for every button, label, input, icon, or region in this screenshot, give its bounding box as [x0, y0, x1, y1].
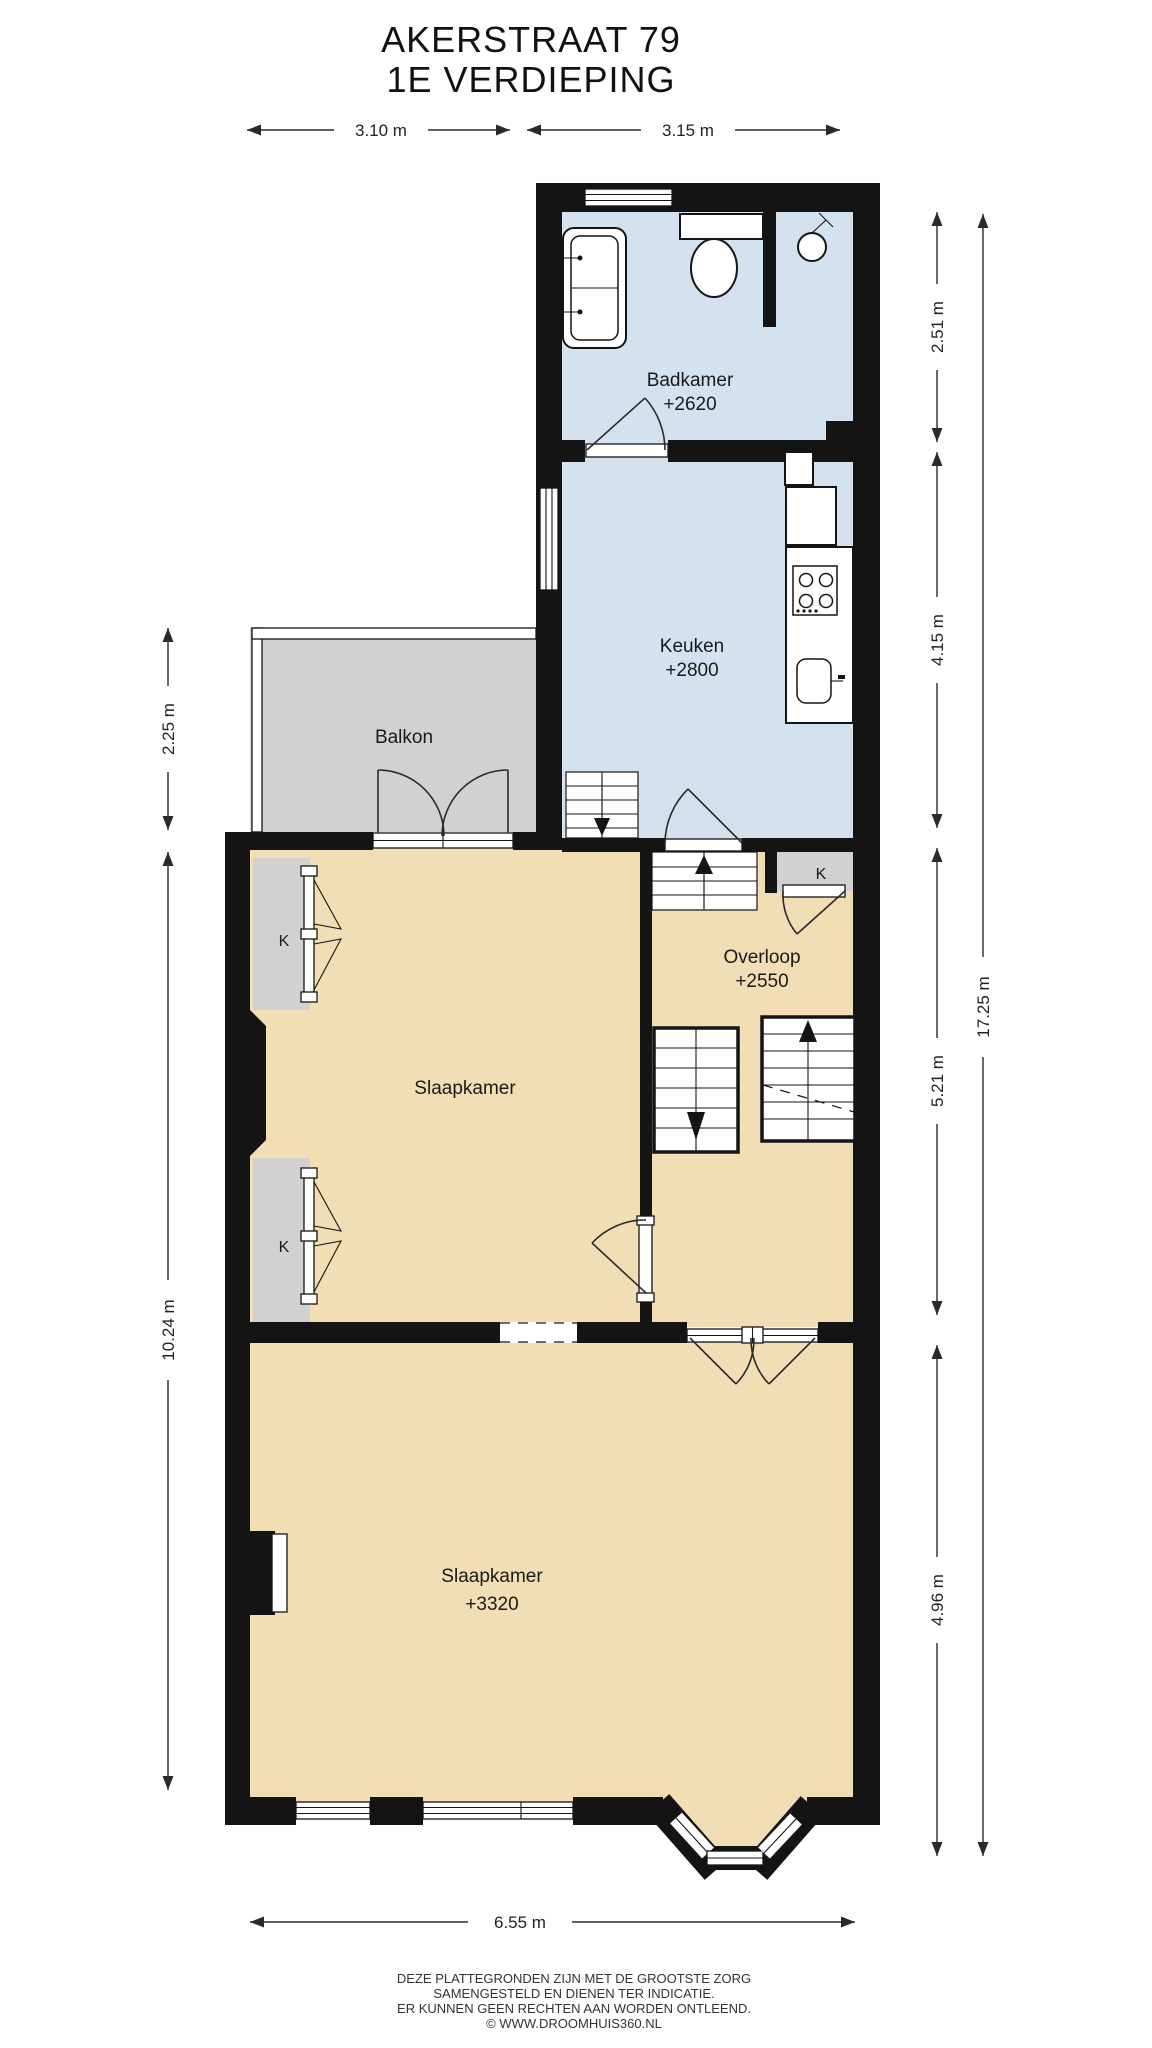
keuken-label: Keuken: [660, 636, 724, 657]
badkamer-door-sill: [586, 444, 668, 457]
stairs-overloop-up-top: [652, 852, 757, 910]
overloop-label: Overloop: [723, 947, 800, 968]
fireplace-fixture: [245, 1531, 287, 1615]
dim-bottom: 6.55 m: [250, 1907, 855, 1937]
overloop-level: +2550: [735, 971, 788, 992]
badkamer-level: +2620: [663, 394, 716, 415]
dim-right-slaapkamer: 4.96 m: [924, 1345, 950, 1856]
dim-right-badkamer: 2.51 m: [924, 212, 950, 442]
chimney-breast: [225, 1010, 266, 1156]
closet-top-left-label: K: [279, 933, 290, 950]
badkamer-label: Badkamer: [647, 370, 734, 391]
footer-line4: © WWW.DROOMHUIS360.NL: [486, 2016, 662, 2031]
slaapkamer-front-floor: [238, 1335, 870, 1805]
floorplan-page: 3.10 m 3.15 m 2.51 m 4.15 m: [0, 0, 1152, 2048]
footer-line2: SAMENGESTELD EN DIENEN TER INDICATIE.: [433, 1986, 714, 2001]
dashed-opening: [500, 1322, 577, 1343]
dim-right-total: 17.25 m: [970, 214, 996, 1856]
balkon-label: Balkon: [375, 727, 433, 748]
slaapkamer-front-window-right: [423, 1802, 573, 1819]
stove-fixture: [793, 566, 837, 615]
dim-right-overloop-label: 5.21 m: [928, 1055, 947, 1107]
slaapkamer-front-window-left: [296, 1802, 370, 1819]
balkon-door-sill: [373, 833, 513, 848]
slaapkamer-mid-door-sill: [637, 1216, 654, 1302]
dim-right-badkamer-label: 2.51 m: [928, 301, 947, 353]
keuken-window: [540, 488, 558, 590]
dim-top-left: 3.10 m: [247, 115, 510, 145]
slaapkamer-front-label: Slaapkamer: [441, 1566, 543, 1587]
dim-top-right: 3.15 m: [527, 115, 840, 145]
stairs-overloop-down: [654, 1028, 738, 1152]
closet-bottom-left-label: K: [279, 1239, 290, 1256]
bay-window-center: [707, 1851, 763, 1865]
footer-line1: DEZE PLATTEGRONDEN ZIJN MET DE GROOTSTE …: [397, 1971, 751, 1986]
dim-right-total-label: 17.25 m: [974, 976, 993, 1037]
keuken-level: +2800: [665, 660, 718, 681]
dim-left-slaapkamers: 10.24 m: [155, 852, 181, 1790]
dim-right-slaapkamer-label: 4.96 m: [928, 1574, 947, 1626]
dim-left-balkon: 2.25 m: [155, 628, 181, 830]
footer-line3: ER KUNNEN GEEN RECHTEN AAN WORDEN ONTLEE…: [397, 2001, 751, 2016]
footer: DEZE PLATTEGRONDEN ZIJN MET DE GROOTSTE …: [397, 1971, 751, 2031]
double-sink-fixture: [552, 228, 626, 348]
closet-overloop-label: K: [816, 866, 827, 883]
dim-left-balkon-label: 2.25 m: [159, 703, 178, 755]
closet-overloop-door-sill: [783, 885, 845, 897]
badkamer-window: [585, 189, 672, 206]
dim-left-slaapkamers-label: 10.24 m: [159, 1299, 178, 1360]
stairs-overloop-up: [762, 1017, 855, 1141]
slaapkamer-front-level: +3320: [465, 1594, 518, 1615]
stairs-keuken-down: [566, 772, 638, 838]
dim-right-keuken: 4.15 m: [924, 452, 950, 828]
page-title-line2: 1E VERDIEPING: [386, 59, 675, 100]
page-title-line1: AKERSTRAAT 79: [381, 19, 681, 60]
dim-bottom-label: 6.55 m: [494, 1913, 546, 1932]
dim-right-keuken-label: 4.15 m: [928, 614, 947, 666]
dim-top-right-label: 3.15 m: [662, 121, 714, 140]
slaapkamer-mid-label: Slaapkamer: [414, 1078, 516, 1099]
keuken-door-sill: [665, 839, 742, 851]
double-door-sill: [687, 1327, 818, 1343]
floorplan-drawing: 3.10 m 3.15 m 2.51 m 4.15 m: [0, 0, 1152, 2048]
dim-top-left-label: 3.10 m: [355, 121, 407, 140]
dim-right-overloop: 5.21 m: [924, 848, 950, 1315]
